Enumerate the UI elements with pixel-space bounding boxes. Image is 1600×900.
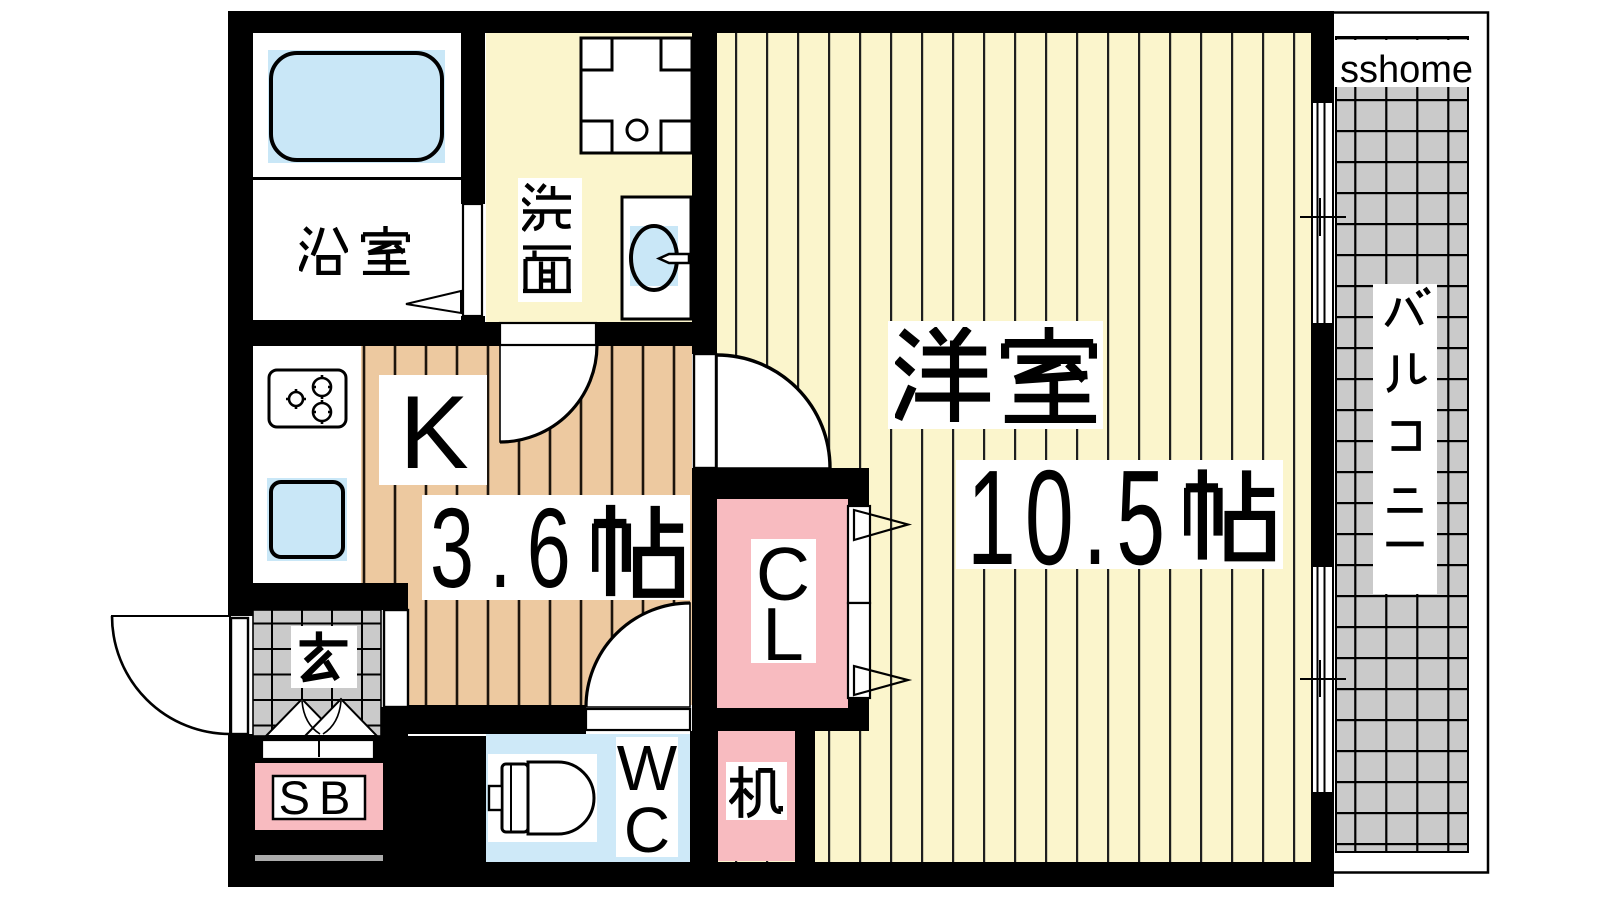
svg-text:sshome: sshome xyxy=(1340,49,1473,91)
svg-text:3.6: 3.6 xyxy=(430,485,586,611)
svg-text:K: K xyxy=(399,375,468,491)
svg-text:10.5: 10.5 xyxy=(967,443,1174,594)
svg-text:C: C xyxy=(624,794,670,866)
svg-text:SB: SB xyxy=(279,771,360,824)
svg-text:L: L xyxy=(762,592,804,676)
